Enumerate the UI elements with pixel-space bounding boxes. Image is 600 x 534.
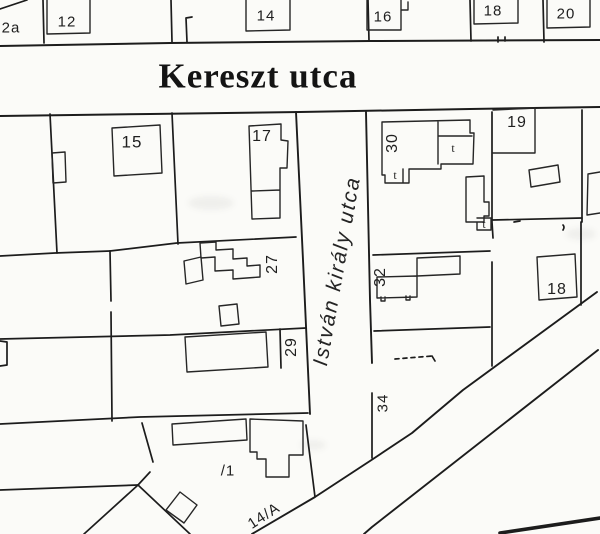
parcel-label-17: 17 <box>252 129 272 145</box>
road-edge <box>84 485 138 534</box>
boundary-line <box>43 0 44 43</box>
parcel-label-27: 27 <box>265 254 281 274</box>
building-outline <box>417 256 460 276</box>
parcel-label-20: 20 <box>557 7 576 22</box>
building-outline <box>466 176 491 230</box>
parcel-label-15: 15 <box>122 134 143 151</box>
building-outline <box>166 492 197 523</box>
kereszt-utca-top-edge <box>0 40 600 46</box>
boundary-line <box>0 251 110 256</box>
building-outline <box>587 172 600 215</box>
boundary-line <box>374 327 490 331</box>
boundary-line <box>581 110 582 305</box>
boundary-line <box>0 328 306 339</box>
boundary-line <box>368 0 369 41</box>
road-edge-thick <box>500 518 600 533</box>
istvan-utca-right-edge <box>366 112 372 363</box>
boundary-line <box>470 0 471 41</box>
parcel-label-34: 34 <box>376 394 391 413</box>
building-outline <box>172 419 247 445</box>
parcel-label-slash1: /1 <box>221 464 236 479</box>
road-edge <box>138 485 190 534</box>
boundary-line <box>492 112 493 366</box>
tick-marks <box>514 221 520 222</box>
boundary-line <box>186 17 192 42</box>
boundary-line <box>280 329 281 368</box>
istvan-utca-left-edge <box>296 112 310 414</box>
boundary-line <box>0 0 27 9</box>
building-outline <box>184 257 203 284</box>
parcel-label-30: 30 <box>385 133 401 153</box>
building-outline <box>219 304 239 326</box>
boundary-line <box>0 341 7 366</box>
parcel-label-2a: 2a <box>2 21 21 36</box>
cross-marker-icon: t <box>393 169 396 181</box>
boundary-line <box>138 472 150 485</box>
parcel-label-18-right: 18 <box>547 282 567 298</box>
boundary-line <box>142 423 153 462</box>
parcel-label-12: 12 <box>58 15 77 30</box>
street-label-kereszt-utca: Kereszt utca <box>159 59 358 94</box>
boundary-line <box>493 218 582 220</box>
building-outline <box>52 152 66 183</box>
parcel-label-32: 32 <box>373 267 389 287</box>
cadastral-map: Kereszt utca István király utca 2a 12 14… <box>0 0 600 534</box>
dashed-fence-hook <box>432 356 435 361</box>
building-outline <box>185 332 268 372</box>
boundary-line <box>306 425 315 497</box>
building-outline <box>529 165 560 187</box>
parcel-label-29: 29 <box>284 337 300 357</box>
cross-marker-icon: t <box>482 218 485 230</box>
cross-marker-icon: t <box>451 142 454 154</box>
building-outline <box>200 242 260 279</box>
building-outline <box>250 419 303 477</box>
scan-smudge <box>300 440 326 450</box>
dashed-fence-line <box>395 356 432 359</box>
boundary-line <box>171 0 172 42</box>
boundary-line <box>543 0 544 42</box>
boundary-line <box>0 485 138 490</box>
parcel-label-18-top: 18 <box>484 4 503 19</box>
parcel-label-19: 19 <box>507 115 527 131</box>
boundary-line <box>110 237 296 251</box>
scan-smudge <box>188 196 234 210</box>
boundary-line <box>172 113 178 244</box>
parcel-label-14: 14 <box>257 9 276 24</box>
boundary-line <box>373 251 490 255</box>
parcel-label-16: 16 <box>374 10 393 25</box>
tick-marks <box>563 225 564 230</box>
scan-smudge <box>566 228 596 240</box>
boundary-line <box>0 413 308 424</box>
